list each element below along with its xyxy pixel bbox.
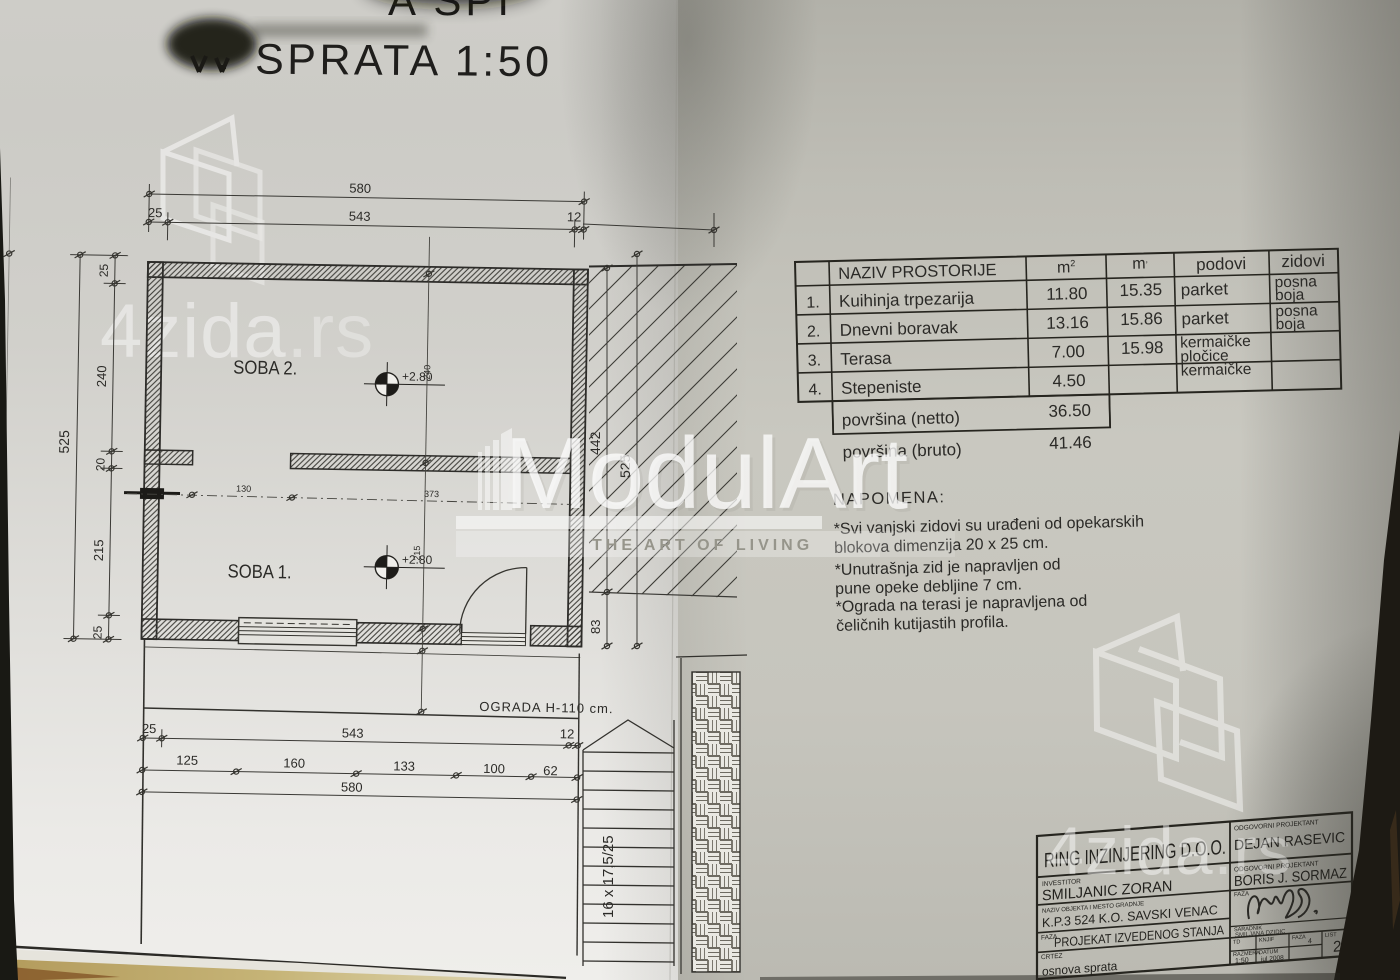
svg-text:543: 543 — [349, 208, 371, 223]
svg-text:580: 580 — [349, 180, 371, 195]
svg-text:KNJIF: KNJIF — [1259, 937, 1275, 944]
svg-text:15.86: 15.86 — [1120, 309, 1163, 329]
svg-text:Kuihinja trpezarija: Kuihinja trpezarija — [839, 289, 975, 311]
svg-text:12: 12 — [560, 726, 575, 741]
svg-text:7.00: 7.00 — [1052, 342, 1086, 362]
svg-text:25: 25 — [90, 625, 104, 639]
svg-text:11.80: 11.80 — [1046, 284, 1088, 304]
svg-text:41.46: 41.46 — [1049, 433, 1092, 453]
svg-text:25: 25 — [148, 205, 163, 220]
svg-text:podovi: podovi — [1196, 254, 1247, 274]
svg-text:62: 62 — [543, 763, 558, 778]
svg-text:12: 12 — [567, 209, 582, 224]
svg-text:1:50: 1:50 — [1235, 956, 1249, 965]
svg-text:Stepeniste: Stepeniste — [841, 377, 922, 398]
svg-text:4.: 4. — [808, 381, 822, 398]
svg-text:kermaičke: kermaičke — [1181, 361, 1252, 380]
svg-text:THE ART OF LIVING: THE ART OF LIVING — [592, 537, 813, 554]
svg-text:boja: boja — [1275, 316, 1305, 334]
svg-text:373: 373 — [424, 489, 439, 499]
svg-text:4.50: 4.50 — [1052, 371, 1086, 391]
svg-text:FAZA: FAZA — [1234, 890, 1250, 898]
svg-text:525: 525 — [56, 430, 72, 454]
svg-text:15.98: 15.98 — [1121, 338, 1164, 358]
svg-text:83: 83 — [588, 620, 603, 634]
svg-text:130: 130 — [236, 484, 251, 494]
svg-text:TD: TD — [1233, 939, 1240, 946]
svg-text:580: 580 — [341, 779, 363, 794]
svg-text:25: 25 — [142, 721, 157, 736]
svg-text:13.16: 13.16 — [1046, 313, 1089, 333]
svg-text:SOBA 1.: SOBA 1. — [227, 561, 291, 583]
svg-text:543: 543 — [342, 725, 364, 740]
svg-text:4zida.rs: 4zida.rs — [1046, 813, 1292, 889]
svg-text:133: 133 — [393, 758, 415, 773]
svg-text:20: 20 — [93, 457, 107, 471]
svg-text:25: 25 — [97, 263, 111, 277]
svg-text:36.50: 36.50 — [1048, 401, 1091, 421]
svg-text:15.35: 15.35 — [1119, 280, 1162, 300]
svg-text:FAZA: FAZA — [1292, 934, 1306, 941]
svg-text:215: 215 — [91, 539, 106, 561]
svg-text:4: 4 — [1308, 937, 1312, 945]
svg-text:160: 160 — [283, 755, 305, 770]
svg-text:ModulArt: ModulArt — [504, 418, 908, 530]
svg-text:100: 100 — [483, 761, 505, 776]
svg-text:Dnevni boravak: Dnevni boravak — [839, 318, 958, 340]
svg-text:zidovi: zidovi — [1281, 251, 1325, 271]
svg-text:SOBA 2.: SOBA 2. — [233, 357, 297, 379]
svg-text:1.: 1. — [806, 294, 820, 311]
svg-text:parket: parket — [1181, 308, 1229, 328]
svg-text:16 x 17,5/25: 16 x 17,5/25 — [600, 835, 617, 918]
svg-text:2.: 2. — [807, 323, 821, 340]
svg-text:parket: parket — [1181, 279, 1229, 299]
svg-text:3.: 3. — [808, 352, 822, 369]
svg-text:OGRADA H-110 cm.: OGRADA H-110 cm. — [479, 699, 613, 716]
svg-text:240: 240 — [94, 365, 109, 387]
svg-text:125: 125 — [176, 753, 198, 768]
svg-text:boja: boja — [1275, 287, 1305, 305]
svg-text:Terasa: Terasa — [840, 349, 892, 369]
svg-text:215: 215 — [412, 546, 422, 561]
svg-text:SPRATA 1:50: SPRATA 1:50 — [255, 36, 553, 87]
